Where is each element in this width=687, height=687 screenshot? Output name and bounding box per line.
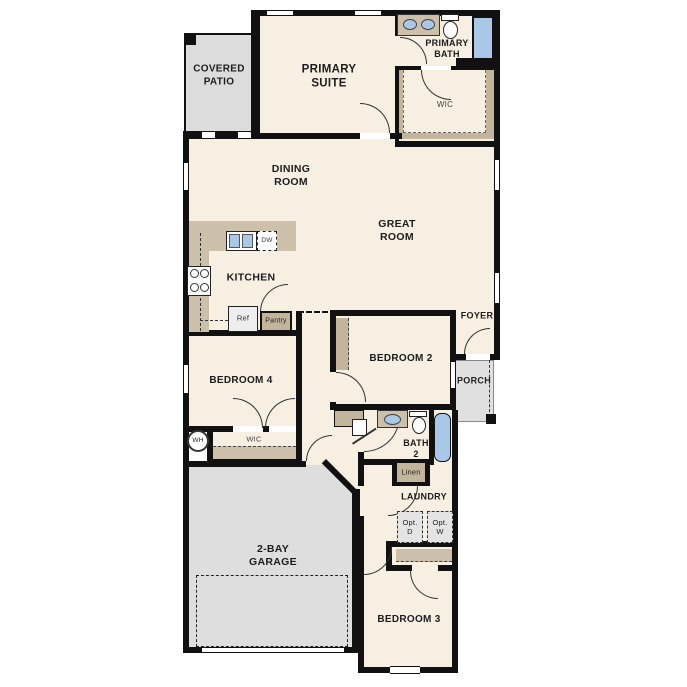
vanity-sink-icon bbox=[403, 19, 417, 30]
bedroom2-closet bbox=[336, 318, 349, 370]
refrigerator-label: Ref bbox=[237, 313, 249, 322]
window bbox=[267, 10, 293, 16]
toilet-bowl-icon bbox=[412, 417, 426, 434]
room-label-bedroom-4-wic: WIC bbox=[246, 434, 261, 443]
stove-burner-icon bbox=[200, 283, 209, 292]
cased-opening-dashed bbox=[298, 311, 328, 313]
wall-segment bbox=[251, 10, 260, 137]
room-label-kitchen: KITCHEN bbox=[227, 271, 276, 284]
room-label-dining-room: DINING ROOM bbox=[272, 163, 311, 189]
porch-edge-dashed bbox=[489, 360, 491, 422]
wall-segment bbox=[490, 354, 500, 360]
room-label-covered-patio: COVERED PATIO bbox=[193, 64, 245, 89]
toilet-bowl-icon bbox=[443, 21, 458, 39]
room-label-foyer: FOYER bbox=[461, 310, 494, 321]
window bbox=[202, 131, 215, 139]
floor-plan: DW Ref Pantry Linen Opt. D Opt. W WH COV… bbox=[0, 0, 687, 687]
pantry-label: Pantry bbox=[265, 318, 286, 327]
wall-segment bbox=[438, 565, 452, 571]
stove-burner-icon bbox=[190, 269, 199, 278]
room-label-primary-suite: PRIMARY SUITE bbox=[302, 63, 357, 92]
room-label-bedroom-2: BEDROOM 2 bbox=[369, 353, 432, 366]
room-porch bbox=[454, 360, 494, 422]
room-label-primary-wic: WIC bbox=[437, 100, 453, 110]
sink-basin-icon bbox=[242, 234, 253, 248]
toilet-icon bbox=[441, 14, 459, 21]
dishwasher-label: DW bbox=[261, 237, 272, 245]
room-label-bedroom-3: BEDROOM 3 bbox=[377, 614, 440, 627]
window bbox=[238, 131, 251, 139]
window bbox=[450, 362, 456, 388]
room-label-great-room: GREAT ROOM bbox=[378, 218, 415, 244]
room-label-laundry: LAUNDRY bbox=[401, 491, 447, 502]
water-heater-label: WH bbox=[192, 437, 203, 445]
wall-segment bbox=[344, 647, 360, 653]
linen-label: Linen bbox=[401, 467, 420, 476]
room-label-bedroom-4: BEDROOM 4 bbox=[209, 375, 272, 388]
wall-segment bbox=[450, 354, 466, 360]
patio-post bbox=[184, 33, 196, 45]
bedroom3-closet-shelf bbox=[396, 549, 452, 562]
wall-segment bbox=[395, 141, 500, 147]
stove-burner-icon bbox=[200, 269, 209, 278]
room-label-bath-2: BATH 2 bbox=[403, 438, 429, 461]
stove-burner-icon bbox=[190, 283, 199, 292]
bathtub-icon bbox=[434, 413, 451, 462]
window bbox=[183, 365, 189, 393]
window bbox=[494, 160, 500, 190]
cabinet-dashed-line bbox=[200, 320, 228, 322]
wall-segment bbox=[258, 133, 360, 139]
wall-segment bbox=[358, 452, 364, 486]
wall-segment bbox=[352, 489, 360, 653]
wall-segment bbox=[395, 66, 399, 141]
opt-washer-label: Opt. W bbox=[433, 518, 448, 536]
wall-segment bbox=[183, 465, 189, 653]
vanity-sink-icon bbox=[421, 19, 435, 30]
window bbox=[494, 273, 500, 303]
vanity-sink-icon bbox=[384, 414, 401, 425]
garage-door-dashed-outline bbox=[196, 575, 348, 647]
wall-segment bbox=[451, 66, 494, 70]
wall-segment bbox=[450, 310, 456, 410]
wall-segment bbox=[330, 310, 456, 316]
window bbox=[183, 163, 189, 190]
wall-segment bbox=[296, 311, 302, 432]
sink-basin-icon bbox=[229, 234, 240, 248]
window bbox=[390, 666, 420, 674]
wall-segment bbox=[183, 461, 306, 467]
room-label-porch: PORCH bbox=[457, 375, 491, 386]
opt-dryer-label: Opt. D bbox=[403, 518, 418, 536]
porch-post bbox=[486, 414, 496, 424]
bedroom4-wic-shelf bbox=[213, 446, 296, 459]
window bbox=[355, 10, 381, 16]
room-label-garage: 2-BAY GARAGE bbox=[249, 543, 297, 569]
wall-segment bbox=[183, 647, 202, 653]
shower-icon bbox=[472, 16, 494, 60]
room-label-primary-bath: PRIMARY BATH bbox=[425, 38, 468, 61]
garage-door bbox=[202, 647, 344, 653]
